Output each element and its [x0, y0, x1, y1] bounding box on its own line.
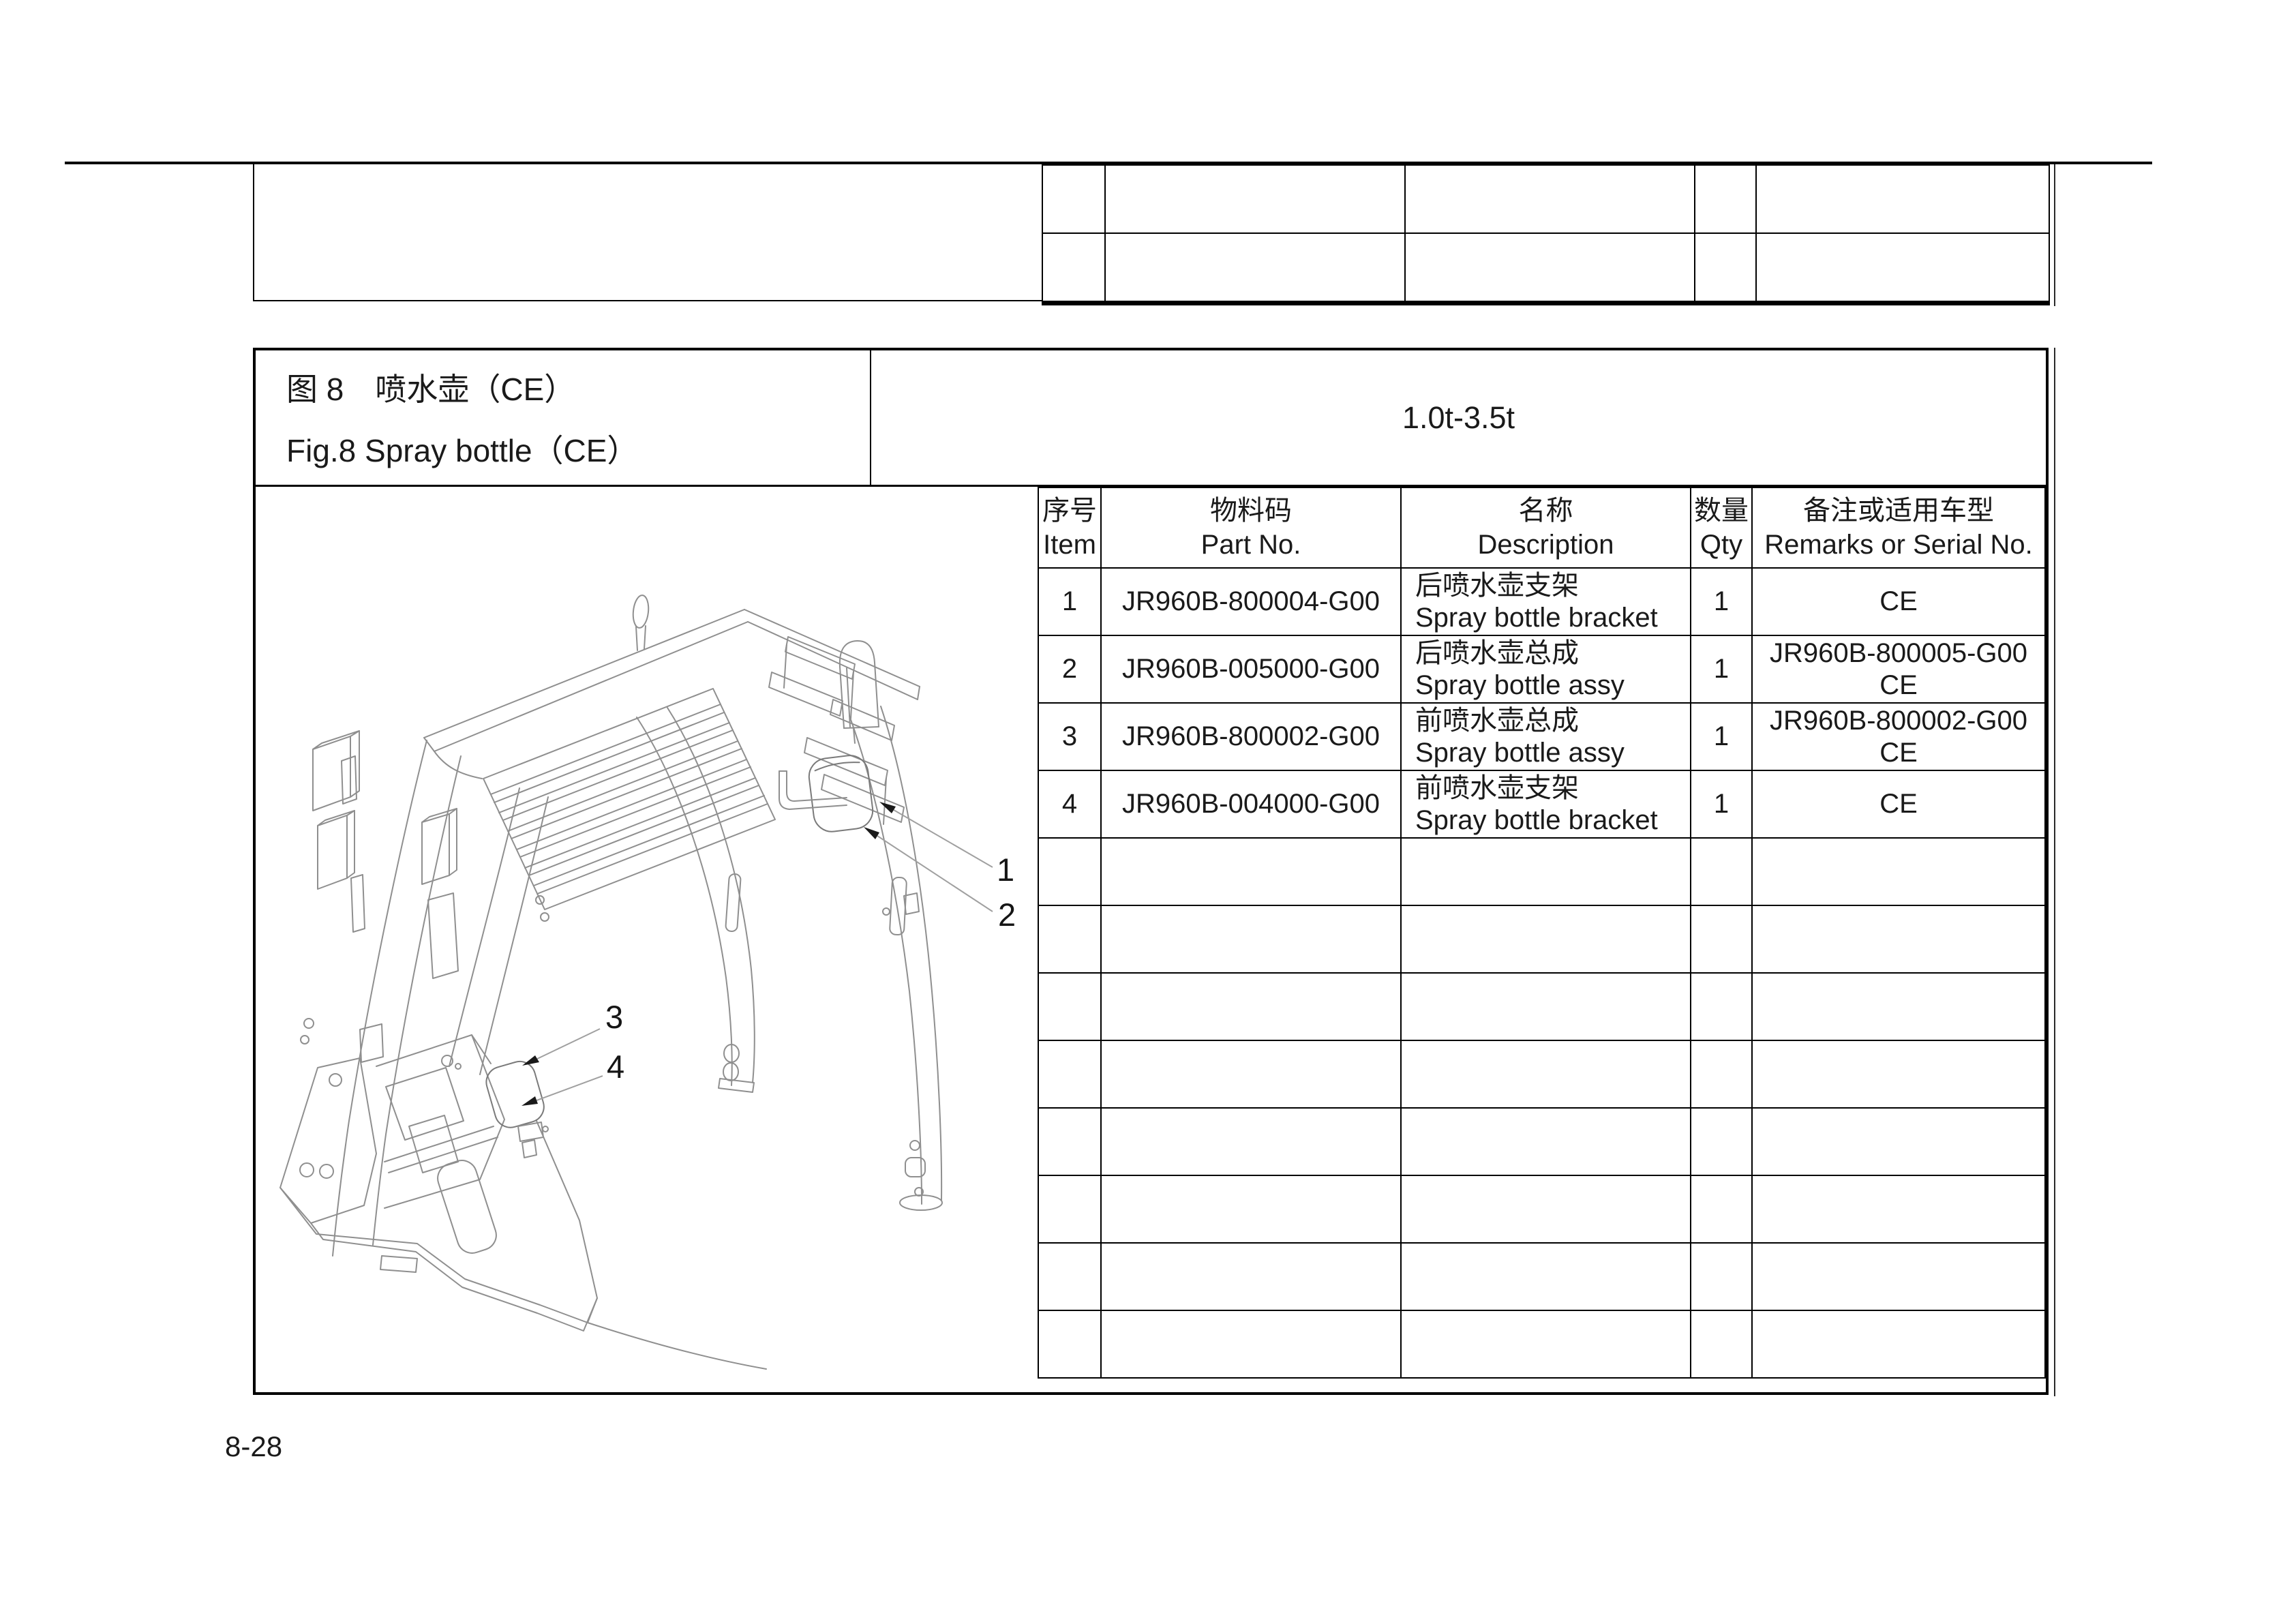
- rear-bottle-hook-bracket: [779, 771, 847, 809]
- capacity-range: 1.0t-3.5t: [1402, 400, 1515, 436]
- empty-cell: [1691, 1243, 1752, 1310]
- cell-item: 3: [1038, 703, 1101, 770]
- empty-cell: [1038, 1310, 1101, 1378]
- cell-item: 4: [1038, 770, 1101, 838]
- left-front-leg: [333, 740, 461, 1256]
- empty-cell: [1042, 233, 1105, 301]
- figure-title-cell: 图 8 喷水壶（CE） Fig.8 Spray bottle（CE）: [256, 350, 871, 485]
- callout-4-arrowhead: [522, 1096, 538, 1106]
- empty-cell: [1101, 973, 1401, 1040]
- empty-row: [1038, 1108, 2045, 1175]
- callout-3-arrowhead: [522, 1055, 539, 1066]
- empty-cell: [1691, 1175, 1752, 1243]
- empty-cell: [1038, 1040, 1101, 1108]
- callout-1-label: 1: [997, 852, 1014, 888]
- right-front-leg: [637, 708, 755, 1092]
- empty-cell: [1101, 1175, 1401, 1243]
- front-bottle-bracket: [518, 1122, 548, 1158]
- header-part-no: 物料码Part No.: [1101, 487, 1401, 568]
- empty-cell: [1101, 1310, 1401, 1378]
- lift-ring: [632, 595, 650, 650]
- empty-cell: [1752, 973, 2045, 1040]
- empty-cell: [1401, 1310, 1691, 1378]
- table-row: 3 JR960B-800002-G00 前喷水壶总成Spray bottle a…: [1038, 703, 2045, 770]
- empty-cell: [1401, 838, 1691, 905]
- right-rear-leg: [849, 706, 942, 1210]
- left-leg-brackets: [313, 731, 365, 932]
- empty-cell: [1101, 905, 1401, 973]
- header-qty: 数量Qty: [1691, 487, 1752, 568]
- page-number: 8-28: [225, 1430, 282, 1463]
- front-cowl-assembly: [280, 1019, 766, 1369]
- empty-cell: [1101, 1243, 1401, 1310]
- callout-3-leader: [537, 1029, 600, 1059]
- empty-cell: [1401, 1243, 1691, 1310]
- cell-item: 2: [1038, 635, 1101, 703]
- cell-description: 前喷水壶总成Spray bottle assy: [1401, 703, 1691, 770]
- cell-qty: 1: [1691, 635, 1752, 703]
- cell-description: 后喷水壶支架Spray bottle bracket: [1401, 568, 1691, 635]
- main-table-right-offset-line: [2054, 348, 2055, 1396]
- cell-remarks: CE: [1752, 568, 2045, 635]
- empty-cell: [1401, 1175, 1691, 1243]
- empty-cell: [1405, 233, 1695, 301]
- empty-cell: [1105, 165, 1405, 233]
- cell-description: 前喷水壶支架Spray bottle bracket: [1401, 770, 1691, 838]
- empty-cell: [1038, 905, 1101, 973]
- empty-cell: [1691, 973, 1752, 1040]
- empty-cell: [1105, 233, 1405, 301]
- cell-description: 后喷水壶总成Spray bottle assy: [1401, 635, 1691, 703]
- empty-cell: [1101, 1040, 1401, 1108]
- top-empty-row: [1042, 165, 2049, 233]
- figure-cell: 1 2 3 4: [256, 487, 1038, 1393]
- empty-cell: [1038, 973, 1101, 1040]
- empty-row: [1038, 1175, 2045, 1243]
- empty-cell: [1752, 1243, 2045, 1310]
- empty-cell: [1038, 838, 1101, 905]
- callout-2-label: 2: [998, 897, 1016, 933]
- callout-2-arrowhead: [864, 827, 879, 839]
- empty-cell: [1101, 838, 1401, 905]
- empty-cell: [1691, 1310, 1752, 1378]
- header-description: 名称Description: [1401, 487, 1691, 568]
- empty-cell: [1042, 165, 1105, 233]
- parts-table: 序号Item 物料码Part No. 名称Description 数量Qty: [1038, 487, 2046, 1379]
- parts-grid: 序号Item 物料码Part No. 名称Description 数量Qty: [1038, 487, 2046, 1393]
- header-row: 序号Item 物料码Part No. 名称Description 数量Qty: [1038, 487, 2045, 568]
- empty-cell: [1695, 165, 1756, 233]
- figure-title-en: Fig.8 Spray bottle（CE）: [286, 426, 870, 471]
- figure-title-row: 图 8 喷水壶（CE） Fig.8 Spray bottle（CE） 1.0t-…: [256, 350, 2046, 487]
- cell-part-no: JR960B-800004-G00: [1101, 568, 1401, 635]
- top-figure-continuation-box: [253, 164, 1042, 301]
- empty-cell: [1038, 1175, 1101, 1243]
- cell-qty: 1: [1691, 568, 1752, 635]
- cell-qty: 1: [1691, 703, 1752, 770]
- cell-remarks: JR960B-800002-G00CE: [1752, 703, 2045, 770]
- empty-cell: [1401, 905, 1691, 973]
- capacity-cell: 1.0t-3.5t: [871, 350, 2046, 485]
- callout-3-label: 3: [605, 999, 623, 1035]
- empty-cell: [1695, 233, 1756, 301]
- cell-remarks: CE: [1752, 770, 2045, 838]
- callout-4-label: 4: [607, 1049, 624, 1085]
- cell-remarks: JR960B-800005-G00CE: [1752, 635, 2045, 703]
- empty-cell: [1038, 1108, 1101, 1175]
- empty-cell: [1038, 1243, 1101, 1310]
- empty-cell: [1752, 1108, 2045, 1175]
- empty-cell: [1752, 1175, 2045, 1243]
- empty-cell: [1691, 1108, 1752, 1175]
- front-spray-bottle: [483, 1058, 547, 1132]
- empty-cell: [1756, 233, 2049, 301]
- top-empty-row: [1042, 233, 2049, 301]
- empty-row: [1038, 905, 2045, 973]
- empty-cell: [1401, 1040, 1691, 1108]
- figure-content-row: 1 2 3 4 序号Item: [256, 487, 2046, 1393]
- empty-cell: [1752, 1040, 2045, 1108]
- empty-cell: [1691, 1040, 1752, 1108]
- overhead-guard-diagram: 1 2 3 4: [256, 487, 1044, 1393]
- callout-2-leader: [877, 836, 993, 912]
- table-row: 1 JR960B-800004-G00 后喷水壶支架Spray bottle b…: [1038, 568, 2045, 635]
- catalog-page: 图 8 喷水壶（CE） Fig.8 Spray bottle（CE） 1.0t-…: [0, 0, 2296, 1624]
- header-remarks: 备注或适用车型Remarks or Serial No.: [1752, 487, 2045, 568]
- empty-row: [1038, 838, 2045, 905]
- rear-top-assembly: [744, 610, 920, 824]
- header-item: 序号Item: [1038, 487, 1101, 568]
- callout-4-leader: [537, 1076, 603, 1100]
- callout-1-leader: [894, 810, 993, 867]
- figure-title-zh: 图 8 喷水壶（CE）: [286, 365, 870, 410]
- table-row: 2 JR960B-005000-G00 后喷水壶总成Spray bottle a…: [1038, 635, 2045, 703]
- empty-cell: [1101, 1108, 1401, 1175]
- cell-item: 1: [1038, 568, 1101, 635]
- empty-row: [1038, 1310, 2045, 1378]
- top-table-right-offset-line: [2054, 164, 2055, 306]
- empty-cell: [1401, 1108, 1691, 1175]
- empty-cell: [1405, 165, 1695, 233]
- cell-part-no: JR960B-800002-G00: [1101, 703, 1401, 770]
- rear-spray-bottle: [807, 753, 875, 834]
- empty-row: [1038, 973, 2045, 1040]
- empty-cell: [1691, 838, 1752, 905]
- empty-cell: [1752, 838, 2045, 905]
- top-parts-table: [1042, 164, 2050, 302]
- empty-cell: [1756, 165, 2049, 233]
- empty-cell: [1401, 973, 1691, 1040]
- table-row: 4 JR960B-004000-G00 前喷水壶支架Spray bottle b…: [1038, 770, 2045, 838]
- cell-part-no: JR960B-005000-G00: [1101, 635, 1401, 703]
- top-parts-grid-continuation: [1042, 164, 2050, 305]
- empty-row: [1038, 1040, 2045, 1108]
- empty-row: [1038, 1243, 2045, 1310]
- empty-cell: [1691, 905, 1752, 973]
- empty-cell: [1752, 905, 2045, 973]
- figure-table-box: 图 8 喷水壶（CE） Fig.8 Spray bottle（CE） 1.0t-…: [253, 348, 2049, 1395]
- empty-cell: [1752, 1310, 2045, 1378]
- cell-part-no: JR960B-004000-G00: [1101, 770, 1401, 838]
- cell-qty: 1: [1691, 770, 1752, 838]
